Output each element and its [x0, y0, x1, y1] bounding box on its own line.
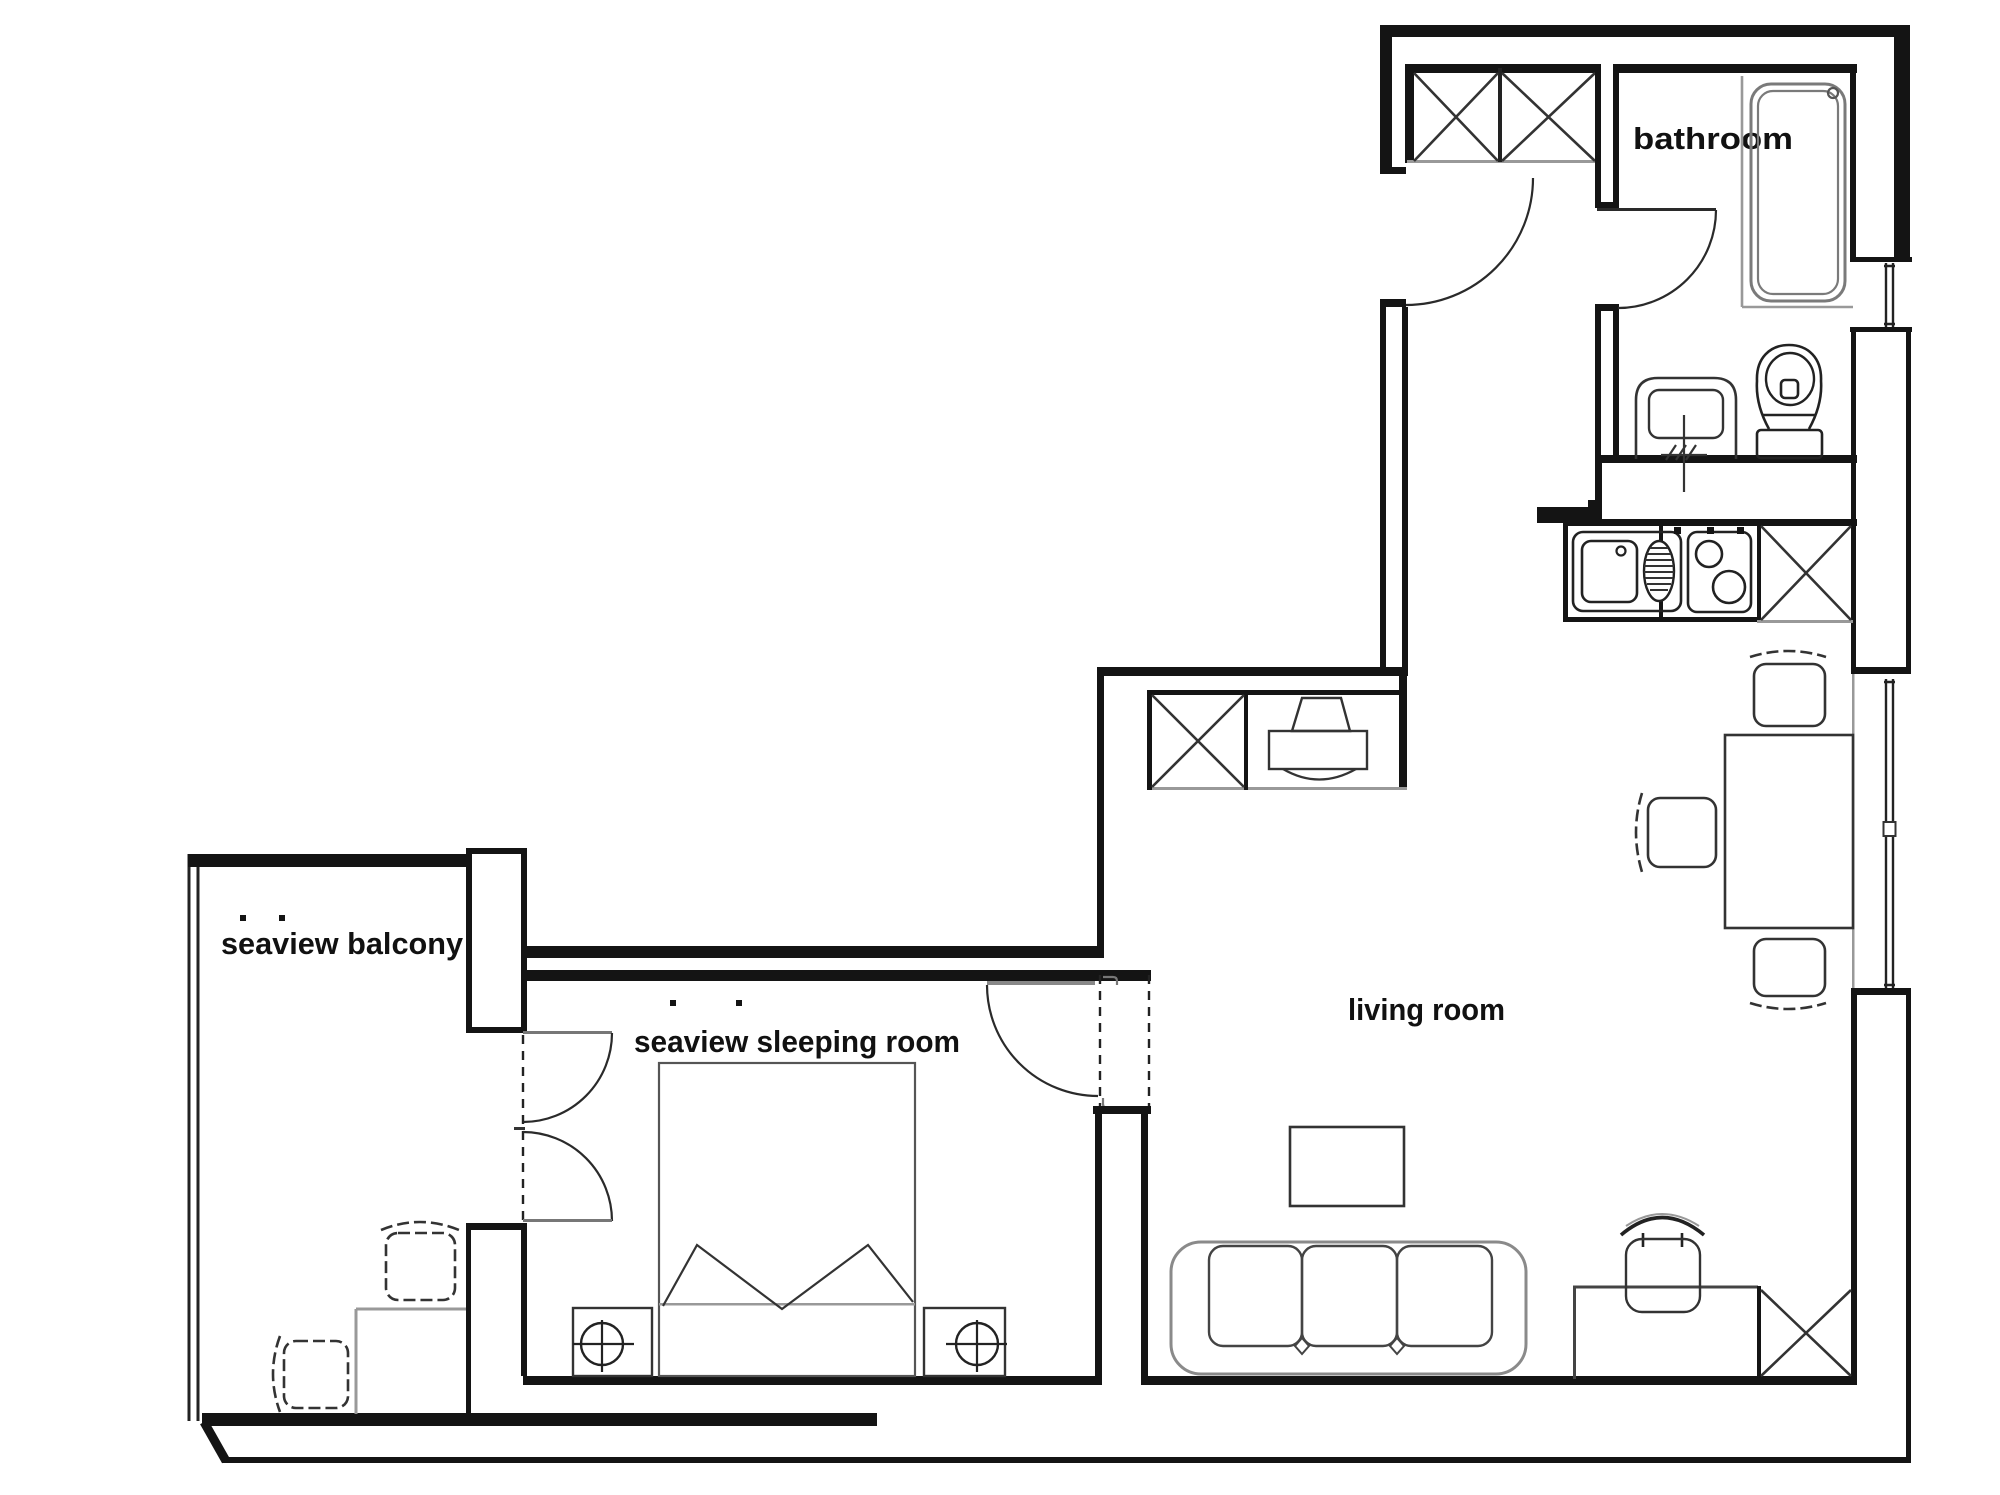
svg-text:bathroom: bathroom [1633, 121, 1793, 156]
svg-text:seaview sleeping room: seaview sleeping room [634, 1024, 960, 1059]
svg-text:seaview balcony: seaview balcony [221, 926, 464, 961]
svg-text:living room: living room [1348, 992, 1505, 1027]
